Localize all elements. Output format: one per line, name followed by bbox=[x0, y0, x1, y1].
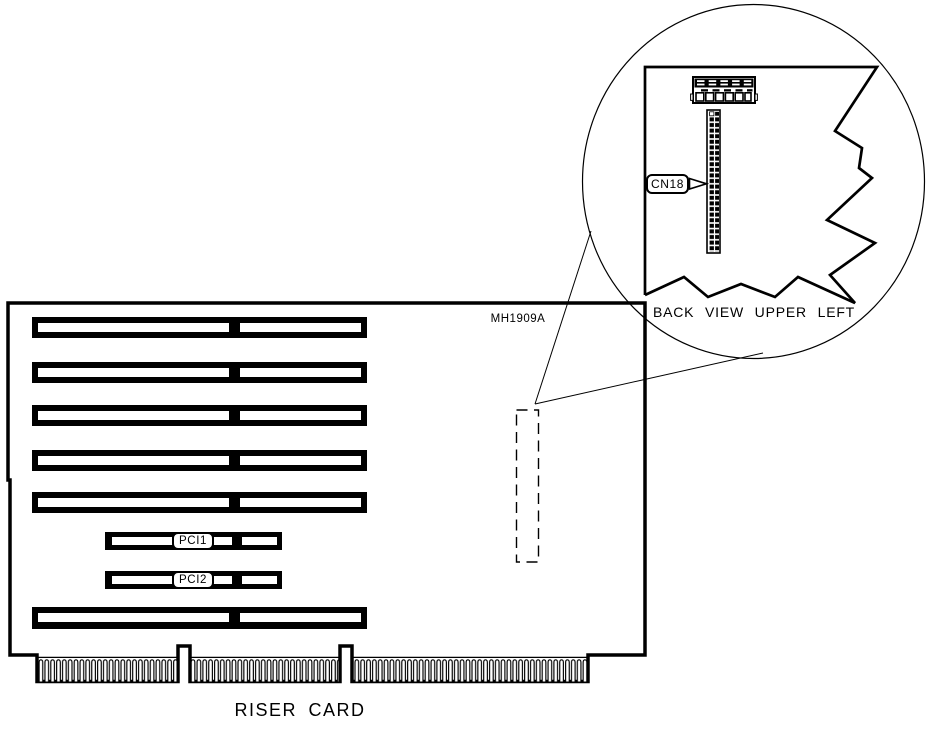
isa-slot bbox=[32, 317, 367, 338]
io-connector-icon bbox=[691, 77, 758, 103]
diagram-linework bbox=[0, 0, 928, 733]
board-part-number: MH1909A bbox=[478, 313, 558, 325]
isa-slot bbox=[32, 492, 367, 513]
edge-connector-fingers bbox=[39, 659, 177, 682]
detail-view-caption: BACK VIEW UPPER LEFT bbox=[653, 304, 853, 320]
riser-card-diagram: MH1909A PCI1 PCI2 CN18 BACK VIEW UPPER L… bbox=[0, 0, 928, 733]
dashed-detail-region bbox=[517, 410, 539, 562]
cn18-pin-header-icon bbox=[707, 110, 720, 253]
cn18-callout-label: CN18 bbox=[646, 174, 689, 194]
pci1-slot-label: PCI1 bbox=[172, 532, 214, 550]
edge-connector-fingers bbox=[354, 659, 587, 682]
edge-connector-fingers bbox=[192, 659, 339, 682]
cn18-callout-pointer bbox=[690, 179, 707, 190]
isa-slot bbox=[32, 607, 367, 629]
leader-line-lower bbox=[535, 353, 763, 404]
isa-slot bbox=[32, 405, 367, 426]
isa-slot bbox=[32, 362, 367, 383]
diagram-title: RISER CARD bbox=[175, 700, 425, 721]
isa-slot bbox=[32, 450, 367, 471]
pci2-slot-label: PCI2 bbox=[172, 571, 214, 589]
edge-connector bbox=[38, 657, 587, 681]
